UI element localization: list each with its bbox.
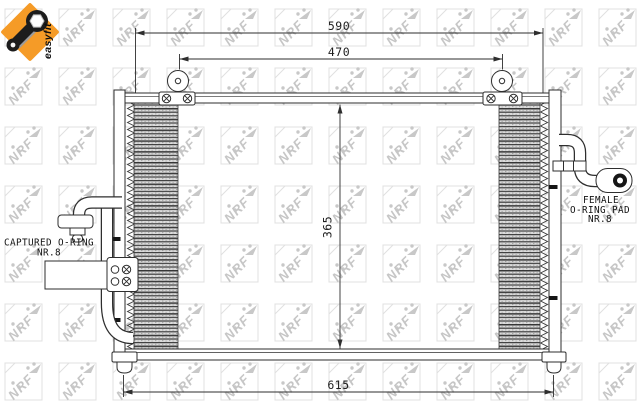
dimension-615-value: 615 bbox=[327, 378, 349, 392]
bottom-header-bar bbox=[125, 349, 549, 360]
right-fin-edge bbox=[540, 103, 550, 349]
diagram-page: NRF easyfit bbox=[0, 0, 640, 415]
right-side-plate bbox=[549, 90, 561, 352]
left-pipe-bracket bbox=[45, 258, 138, 292]
female-oring-pad bbox=[596, 169, 632, 193]
left-side-plate bbox=[114, 90, 125, 352]
technical-diagram: NRF easyfit bbox=[0, 0, 640, 415]
pipe-clamp bbox=[553, 161, 586, 171]
female-pad-label-line3: NR.8 bbox=[588, 214, 612, 225]
dimension-470-value: 470 bbox=[328, 45, 350, 59]
dimension-365-value: 365 bbox=[321, 216, 335, 238]
captured-oring-label-line2: NR.8 bbox=[37, 248, 61, 259]
easyfit-label: easyfit bbox=[42, 23, 54, 59]
dimension-590-value: 590 bbox=[328, 19, 350, 33]
left-fin-edge bbox=[125, 103, 135, 349]
